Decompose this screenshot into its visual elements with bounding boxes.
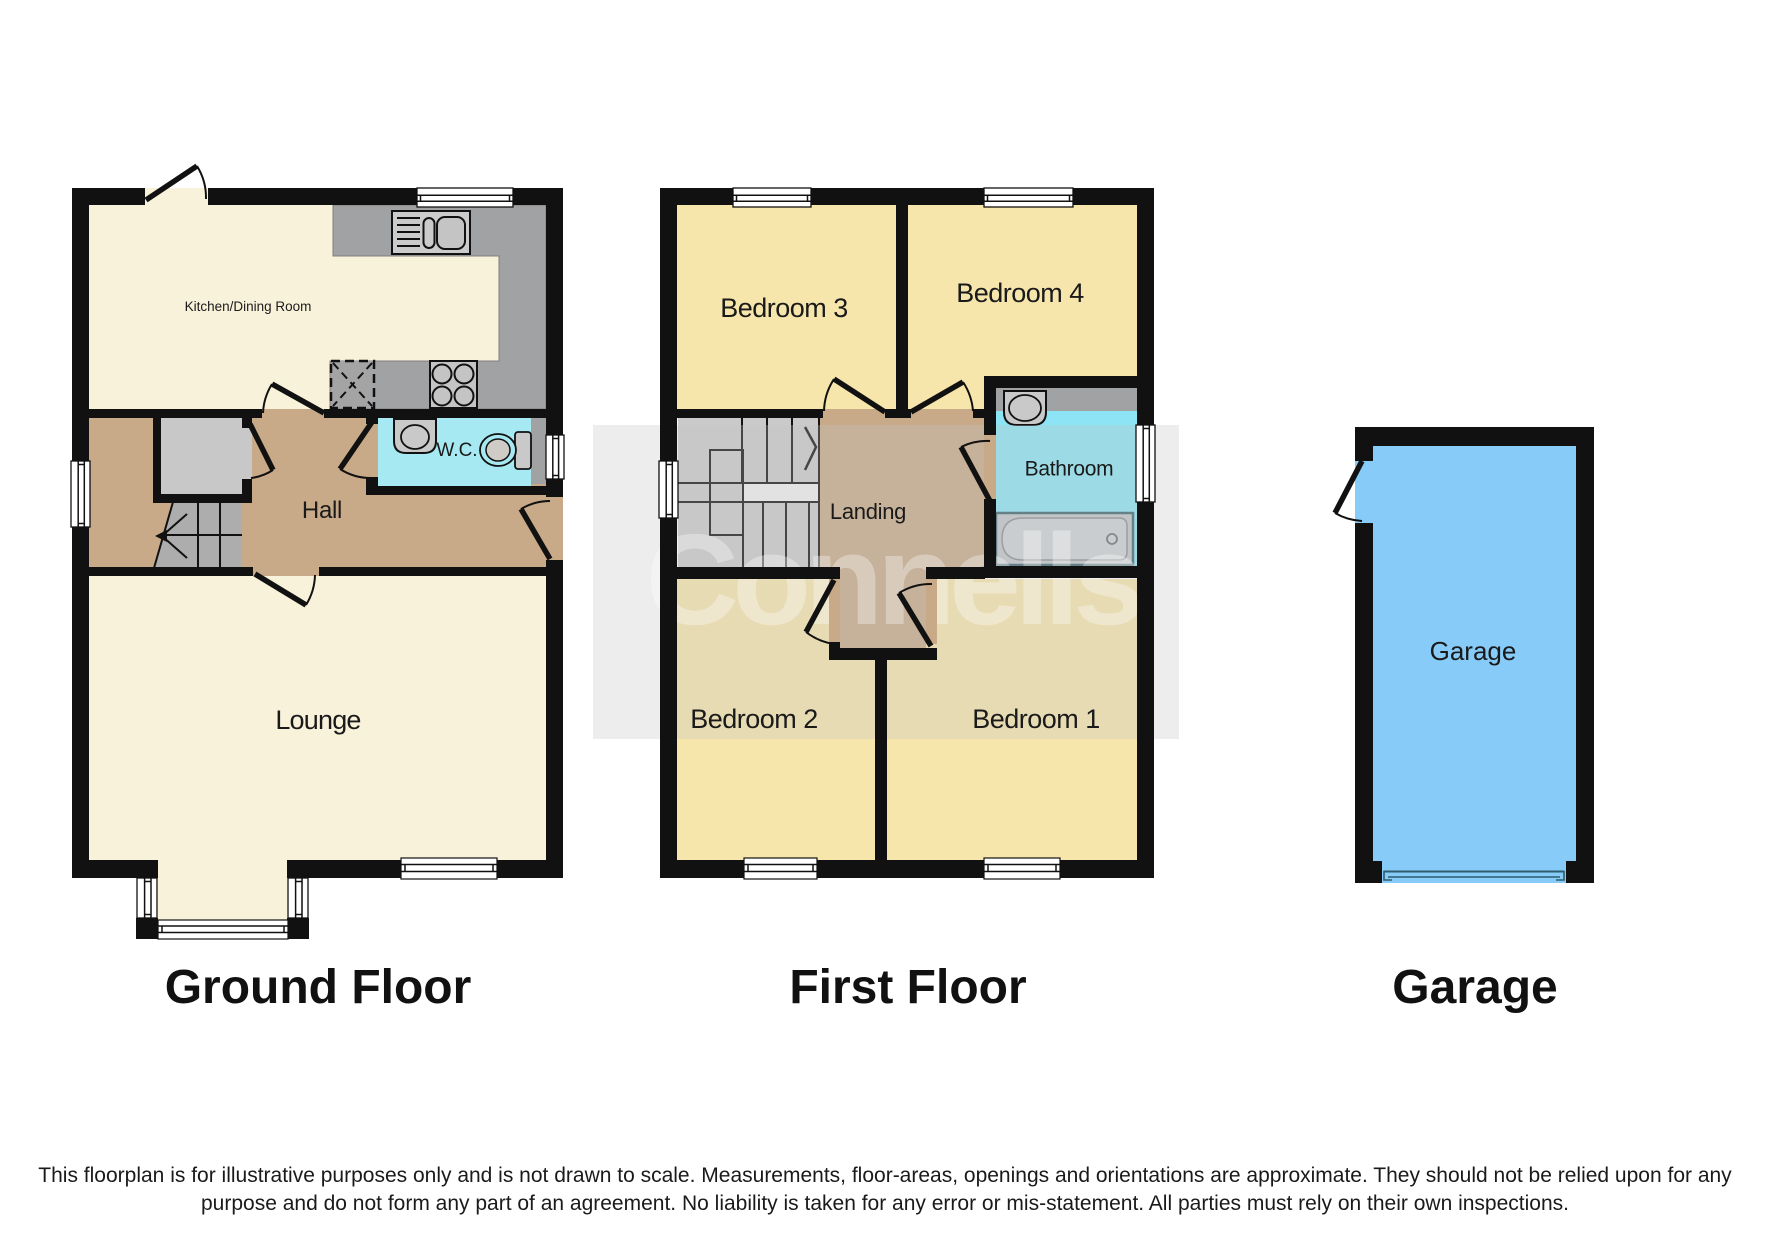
- svg-text:Bedroom 3: Bedroom 3: [720, 293, 848, 323]
- svg-text:Landing: Landing: [830, 499, 906, 524]
- svg-text:Bedroom 4: Bedroom 4: [956, 278, 1084, 308]
- svg-text:Kitchen/Dining Room: Kitchen/Dining Room: [185, 299, 312, 314]
- svg-text:Bedroom 1: Bedroom 1: [972, 704, 1100, 734]
- svg-text:Garage: Garage: [1392, 961, 1557, 1014]
- svg-text:Hall: Hall: [302, 497, 342, 524]
- svg-text:Bathroom: Bathroom: [1025, 458, 1114, 481]
- svg-text:This floorplan is for illustra: This floorplan is for illustrative purpo…: [38, 1164, 1732, 1187]
- svg-text:First Floor: First Floor: [789, 961, 1026, 1014]
- svg-text:Connells: Connells: [646, 508, 1140, 652]
- svg-text:W.C.: W.C.: [436, 440, 477, 461]
- svg-text:purpose and do not form any pa: purpose and do not form any part of an a…: [201, 1192, 1569, 1215]
- svg-text:Ground Floor: Ground Floor: [165, 961, 472, 1014]
- svg-text:Bedroom 2: Bedroom 2: [690, 704, 818, 734]
- svg-text:Lounge: Lounge: [275, 705, 360, 735]
- svg-text:Garage: Garage: [1430, 636, 1517, 666]
